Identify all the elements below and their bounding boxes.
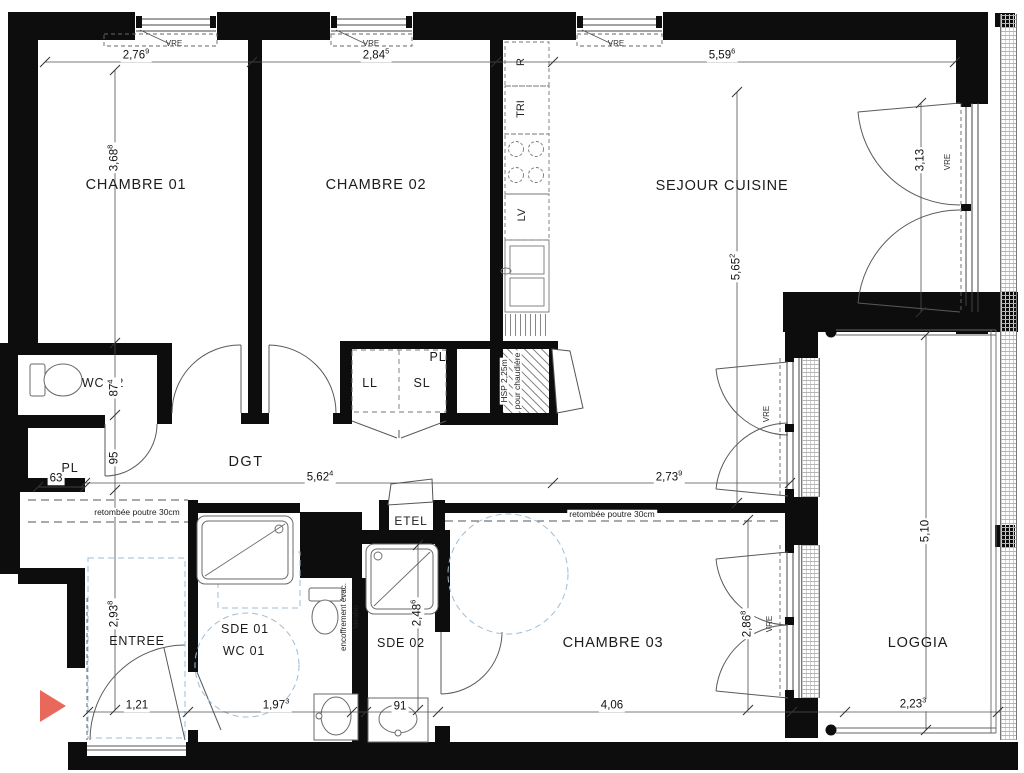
- dim-chambre03-width: 4,06: [599, 700, 625, 712]
- dim-sde02-height: 2,486: [412, 598, 424, 629]
- dim-pl-width: 63: [48, 473, 65, 485]
- dim-pl-height: 95: [109, 450, 121, 467]
- kitchen-units: [501, 42, 549, 312]
- dim-sde01-width: 1,973: [261, 700, 292, 712]
- floor-plan: CHAMBRE 01 CHAMBRE 02 SEJOUR CUISINE WC …: [0, 0, 1024, 773]
- dim-chambre02-width: 2,845: [361, 50, 392, 62]
- closet-label-ll: LL: [362, 376, 378, 390]
- door-arcs: [90, 103, 960, 740]
- dim-entree-height: 2,938: [109, 599, 121, 630]
- entrance-arrow-icon: [40, 690, 66, 722]
- entrance-sill: [87, 746, 186, 750]
- fridge-icon: [505, 42, 549, 86]
- room-label-entree: ENTREE: [109, 634, 165, 648]
- toilet-tank-icon: [30, 364, 45, 396]
- closet-label-pl: PL: [430, 350, 447, 364]
- room-label-chambre-03: CHAMBRE 03: [563, 635, 664, 651]
- room-label-chambre-02: CHAMBRE 02: [326, 177, 427, 193]
- window-tag-vre: VRE: [608, 40, 624, 48]
- window-tag-vre: VRE: [763, 406, 771, 422]
- window-tag-vre: VRE: [766, 616, 774, 632]
- closet-label-sl: SL: [414, 376, 431, 390]
- note-beam: retombée poutre 30cm: [92, 508, 182, 517]
- dim-loggia-height: 5,10: [920, 518, 932, 544]
- dim-wc02-height: 874: [109, 378, 121, 399]
- room-label-wc-01: WC 01: [223, 644, 265, 658]
- dim-dgt-width-2: 2,739: [654, 472, 685, 484]
- note-beam: retombée poutre 30cm: [567, 510, 657, 519]
- sink-icon: [321, 697, 351, 735]
- toilet-bowl-icon: [44, 364, 82, 396]
- dim-sejour-width: 5,596: [707, 50, 738, 62]
- note-hsp-line1: HSP 2,25m: [500, 357, 509, 404]
- dim-chambre01-height: 3,688: [109, 143, 121, 174]
- fixtures: [30, 364, 438, 742]
- note-encoffrement-line2: lavabo: [352, 603, 360, 631]
- dim-dgt-width-1: 5,624: [305, 472, 336, 484]
- window-tag-vre: VRE: [363, 40, 379, 48]
- dim-sejour-height: 5,652: [731, 252, 743, 283]
- column-dot: [826, 725, 837, 736]
- room-label-chambre-01: CHAMBRE 01: [86, 177, 187, 193]
- toilet-bowl-icon: [312, 600, 338, 634]
- room-label-loggia: LOGGIA: [888, 635, 948, 651]
- dim-chambre03-height: 2,868: [742, 609, 754, 640]
- dim-loggia-width: 2,233: [898, 699, 929, 711]
- dim-chambre01-width: 2,769: [121, 50, 152, 62]
- loggia-railing: [836, 330, 996, 733]
- room-label-sejour-cuisine: SEJOUR CUISINE: [656, 178, 789, 194]
- kitchen-label-fridge: R: [515, 58, 527, 66]
- dim-sde02-width: 91: [392, 701, 409, 713]
- window-tag-vre: VRE: [944, 154, 952, 170]
- room-label-sde-02: SDE 02: [377, 636, 425, 650]
- room-label-dgt: DGT: [228, 454, 263, 470]
- room-label-sde-01: SDE 01: [221, 622, 269, 636]
- window-tag-vre: VRE: [166, 40, 182, 48]
- toilet-tank-icon: [309, 588, 342, 601]
- kitchen-label-dishwasher: LV: [516, 209, 528, 222]
- column-dot: [826, 327, 837, 338]
- boiler-door-leaf: [552, 349, 583, 413]
- kitchen-sink-icon: [505, 240, 549, 312]
- dim-entree-width: 1,21: [124, 700, 150, 712]
- closet-label-etel: ETEL: [394, 514, 427, 528]
- tri-cabinet-icon: [505, 86, 549, 134]
- note-encoffrement-line1: encoffrement évac.: [340, 581, 348, 653]
- note-hsp-line2: pour chaudière: [513, 351, 522, 412]
- dim-right-window-height: 3,13: [915, 147, 927, 173]
- kitchen-label-tri: TRI: [515, 100, 527, 118]
